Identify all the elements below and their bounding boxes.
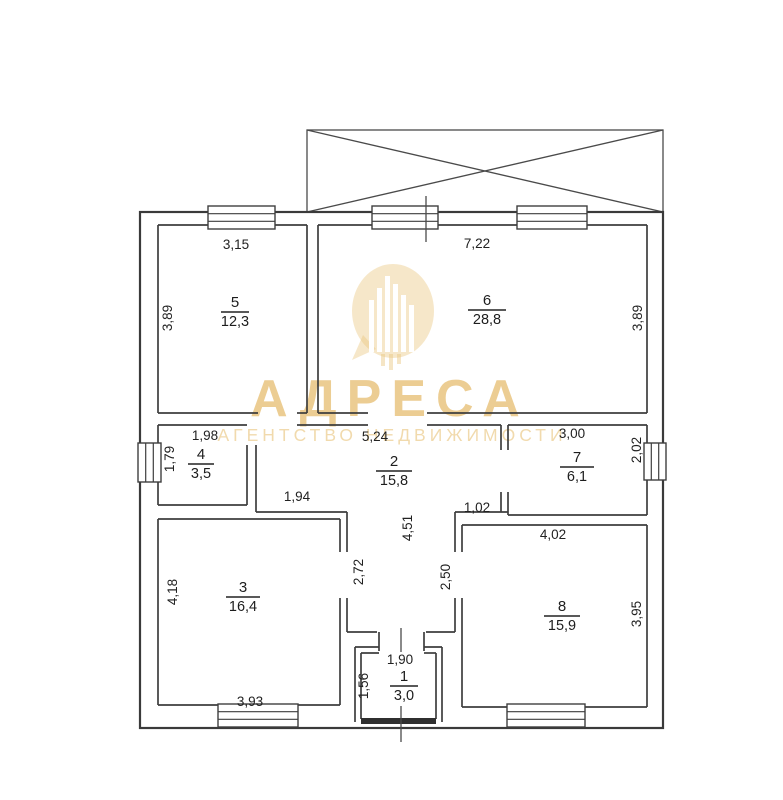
room-number: 6 xyxy=(483,292,491,309)
room-5-label: 5 12,3 xyxy=(221,294,249,330)
dim-label: 5,24 xyxy=(362,429,389,444)
dim-label: 3,89 xyxy=(630,305,645,331)
watermark: АДРЕСА АГЕНТСТВО НЕДВИЖИМОСТИ xyxy=(217,264,566,445)
window-room4-left xyxy=(138,443,161,482)
dim-label: 2,72 xyxy=(351,559,366,585)
floor-plan-page: АДРЕСА АГЕНТСТВО НЕДВИЖИМОСТИ xyxy=(0,0,783,800)
room-7-label: 7 6,1 xyxy=(560,449,594,485)
dim-label: 7,22 xyxy=(464,236,490,251)
room-number: 8 xyxy=(558,598,566,615)
dim-label: 1,90 xyxy=(387,652,413,667)
watermark-logo xyxy=(352,264,434,370)
terrace-crossed-area xyxy=(307,130,663,212)
room-4-label: 4 3,5 xyxy=(188,446,214,482)
window-room5-top xyxy=(208,206,275,229)
room-area: 16,4 xyxy=(229,599,257,615)
room-3-label: 3 16,4 xyxy=(226,579,260,615)
dim-label: 4,02 xyxy=(540,527,566,542)
room-8-label: 8 15,9 xyxy=(544,598,580,634)
floor-plan-drawing: АДРЕСА АГЕНТСТВО НЕДВИЖИМОСТИ xyxy=(0,0,783,800)
window-room8-bottom xyxy=(507,704,585,727)
dim-label: 3,00 xyxy=(559,426,585,441)
room-number: 5 xyxy=(231,294,239,311)
room-area: 6,1 xyxy=(567,469,587,485)
room-number: 1 xyxy=(400,668,408,685)
room-area: 3,5 xyxy=(191,466,211,482)
room-number: 7 xyxy=(573,449,581,466)
entrance-threshold xyxy=(361,718,436,724)
room-area: 15,8 xyxy=(380,473,408,489)
room-area: 15,9 xyxy=(548,618,576,634)
dim-label: 3,93 xyxy=(237,694,263,709)
dim-label: 1,02 xyxy=(464,500,490,515)
dim-label: 4,18 xyxy=(165,579,180,605)
watermark-tagline: АГЕНТСТВО НЕДВИЖИМОСТИ xyxy=(217,425,566,445)
room-area: 12,3 xyxy=(221,314,249,330)
dim-label: 2,50 xyxy=(438,564,453,590)
room-number: 4 xyxy=(197,446,205,463)
room-6-label: 6 28,8 xyxy=(468,292,506,328)
room-number: 3 xyxy=(239,579,247,596)
dim-label: 3,89 xyxy=(160,305,175,331)
dim-label: 1,79 xyxy=(162,446,177,472)
room-2-label: 2 15,8 xyxy=(376,453,412,489)
window-room6-right-top xyxy=(517,206,587,229)
dim-label: 1,56 xyxy=(356,673,371,699)
dim-label: 3,15 xyxy=(223,237,249,252)
dim-label: 4,51 xyxy=(400,515,415,541)
watermark-brand: АДРЕСА xyxy=(250,370,530,428)
window-room6-left-top xyxy=(372,196,438,242)
room-2-walls xyxy=(256,425,508,651)
dim-label: 3,95 xyxy=(629,601,644,627)
room-area: 28,8 xyxy=(473,312,501,328)
room-1-label: 1 3,0 xyxy=(390,668,418,704)
room-area: 3,0 xyxy=(394,688,414,704)
dim-label: 1,98 xyxy=(192,428,218,443)
dim-label: 2,02 xyxy=(629,437,644,463)
dim-label: 1,94 xyxy=(284,489,311,504)
room-number: 2 xyxy=(390,453,398,470)
window-room7-right xyxy=(644,443,666,480)
